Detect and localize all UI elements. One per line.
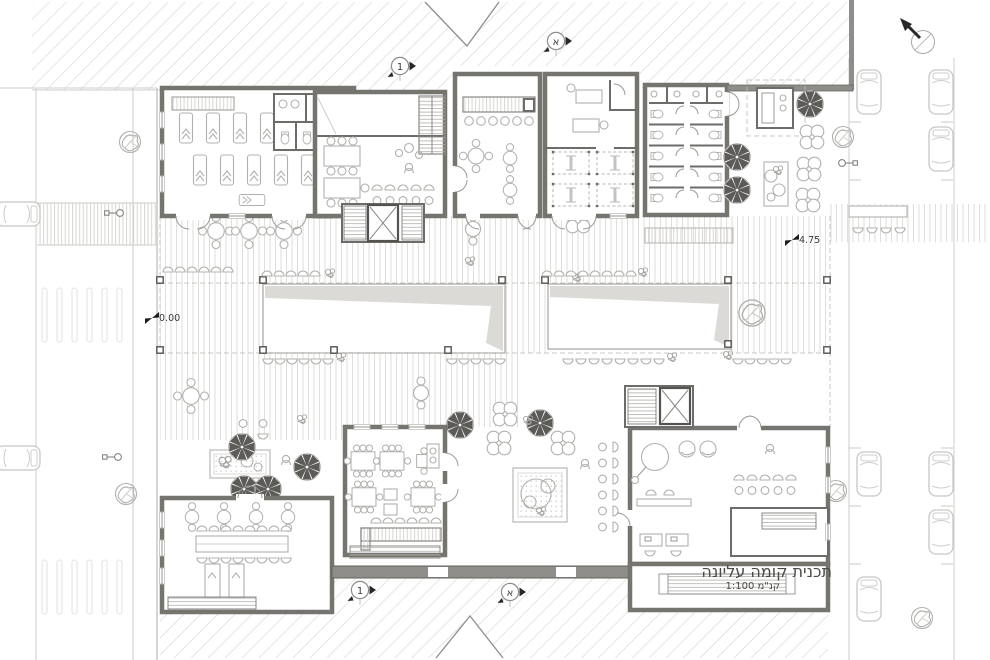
column [499, 277, 505, 283]
section-letter: 1 [357, 586, 363, 597]
seat-icon [867, 228, 877, 233]
courtyard-seat-column [599, 442, 618, 532]
column [260, 277, 266, 283]
tree-planter [513, 468, 567, 522]
car-icon [857, 452, 881, 496]
flower-table-icon [800, 125, 824, 149]
car-icon [929, 127, 953, 171]
parking-stall-marks [42, 288, 122, 614]
car-icon [857, 577, 881, 621]
elevator-block-north [342, 204, 424, 242]
elevator-icon [368, 205, 398, 241]
flower-table-icon [487, 431, 511, 455]
bench [849, 206, 907, 217]
car-icon [0, 446, 40, 470]
room-restaurant [159, 486, 332, 612]
car-icon [929, 510, 953, 554]
crosswalk [37, 203, 156, 245]
column [725, 277, 731, 283]
courtyard-south-wall [332, 566, 632, 578]
neighbor-wall [849, 0, 854, 90]
bar-counter [361, 528, 441, 541]
column [824, 277, 830, 283]
street-lamp-icon [103, 454, 122, 461]
adjacent-roof-hatch-top [32, 0, 854, 90]
tree-icon [912, 608, 933, 629]
seat-icon [853, 228, 863, 233]
tree-icon [116, 484, 137, 505]
person-icon [581, 459, 590, 469]
elevation-value: 0.00 [159, 313, 180, 324]
column [157, 347, 163, 353]
column [824, 347, 830, 353]
title-block: תכנית קומה עליונה קנ"מ 1:100 [630, 563, 832, 593]
column [542, 277, 548, 283]
floor-plan-canvas: א 1 1 א 0.00 4.75 תכנית קומה עליונה קנ"מ… [0, 0, 990, 660]
car-icon [0, 202, 40, 226]
drawing-scale: קנ"מ 1:100 [630, 581, 780, 593]
car-icon [929, 70, 953, 114]
person-icon [282, 455, 291, 465]
stair [762, 513, 816, 529]
section-letter: א [553, 37, 560, 48]
left-street [0, 88, 157, 660]
section-letter: 1 [397, 62, 403, 73]
umbrella-icon [792, 86, 828, 122]
flower-table-icon [493, 402, 517, 426]
floor-plan-drawing: א 1 1 א 0.00 4.75 [0, 0, 990, 660]
right-parking [826, 58, 990, 660]
pergola-band [645, 228, 733, 243]
stair [168, 597, 256, 609]
column [260, 347, 266, 353]
tree-icon [833, 127, 854, 148]
umbrella-icon [289, 449, 325, 485]
north-arrow [900, 18, 935, 54]
parking-tick-marks [849, 122, 953, 564]
elevator-icon [660, 388, 690, 424]
stair [350, 546, 440, 558]
room-bar [451, 74, 540, 229]
drawing-title: תכנית קומה עליונה [630, 563, 832, 581]
column [157, 277, 163, 283]
car-icon [857, 70, 881, 114]
flower-table-icon [551, 431, 575, 455]
courtyard-void-west [263, 284, 505, 353]
flower-table-icon [797, 157, 821, 181]
section-letter: א [507, 588, 514, 599]
car-icon [929, 452, 953, 496]
seat-icon [881, 228, 891, 233]
courtyard-void-east [548, 284, 731, 349]
street-lamp-icon [839, 160, 858, 167]
seat-icon [895, 228, 905, 233]
elevation-marker-ground: 0.00 [145, 312, 180, 324]
column [725, 341, 731, 347]
tree-icon [120, 132, 141, 153]
elevation-value: 4.75 [799, 235, 820, 246]
terrace-kiosk [719, 80, 853, 212]
room-dining [315, 92, 445, 216]
room-dining-hall [344, 424, 458, 558]
flower-table-icon [796, 188, 820, 212]
room-workshop [545, 74, 637, 229]
column [445, 347, 451, 353]
column [331, 347, 337, 353]
elevator-block-south [625, 386, 693, 427]
